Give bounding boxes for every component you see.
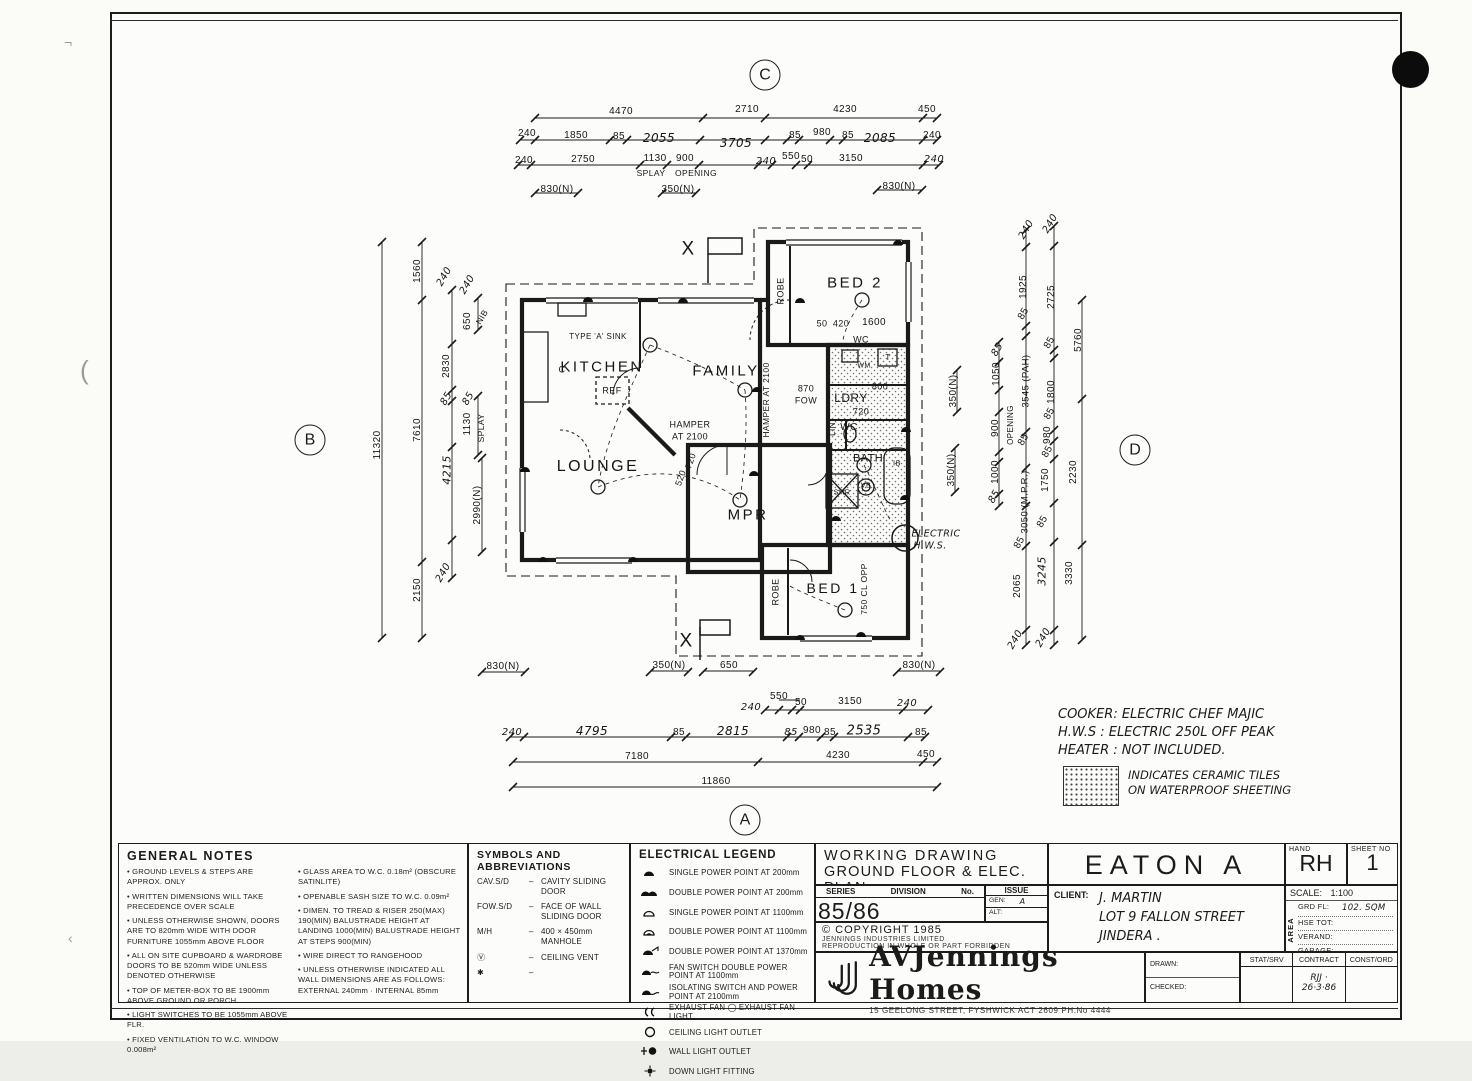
electrical-legend-desc: EXHAUST FAN ◯ EXHAUST FAN LIGHT (669, 1004, 814, 1021)
plan-label: 830(N) (883, 182, 916, 192)
plan-label: 2830 (442, 354, 452, 378)
plan-label: 750 CL OPP (860, 563, 869, 614)
plan-label: 650 (463, 312, 473, 330)
contract-headers: STAT/SRVCONTRACTCONST/ORD (1241, 953, 1397, 967)
ceiling-light-icon (639, 1025, 663, 1042)
section-marker-c: C (750, 60, 781, 91)
division-label: DIVISION (891, 887, 926, 896)
symbol-dash: – (529, 968, 541, 978)
scale-label: SCALE: (1290, 888, 1322, 898)
plan-label: 85 (613, 132, 625, 142)
issue-gen-value: A (1020, 897, 1025, 906)
plan-label: SHR (833, 488, 850, 496)
wall-light-icon (639, 1044, 663, 1061)
plan-label: SPLAY (477, 414, 486, 443)
plan-label: 350(N) (947, 454, 957, 487)
plan-label: 1050 (992, 362, 1002, 386)
electrical-legend-rows: SINGLE POWER POINT AT 200mmDOUBLE POWER … (631, 865, 814, 1081)
plan-label: FAMILY (692, 364, 759, 379)
plan-label: 2725 (1047, 285, 1057, 309)
plan-label: 350(N) (653, 661, 686, 671)
tile-legend-swatch (1063, 766, 1119, 806)
symbol-dash: – (529, 953, 541, 963)
symbol-desc: CAVITY SLIDING DOOR (541, 877, 629, 896)
symbol-desc: CEILING VENT (541, 953, 599, 963)
plan-label: 2065 (1013, 574, 1023, 598)
symbol-row: FOW.S/D – FACE OF WALL SLIDING DOOR (477, 902, 629, 921)
general-notes-box: GENERAL NOTES GROUND LEVELS & STEPS ARE … (118, 843, 468, 1003)
electrical-legend-desc: FAN SWITCH DOUBLE POWER POINT AT 1100mm (669, 964, 814, 981)
general-note-item: GLASS AREA TO W.C. 0.18m² (OBSCURE SATIN… (298, 867, 461, 888)
plan-label: REF (602, 387, 621, 396)
plan-label: 1130 (463, 412, 473, 435)
plan-label: BATH (853, 454, 883, 465)
plan-label: 980 (1043, 426, 1053, 444)
electrical-legend-row: DOUBLE POWER POINT AT 1100mm (639, 924, 814, 941)
electrical-legend-desc: DOUBLE POWER POINT AT 1370mm (669, 948, 808, 957)
issue-cell: ISSUE GEN: A ALT: (985, 885, 1048, 922)
electrical-legend-row: DOWN LIGHT FITTING (639, 1064, 814, 1081)
electrical-legend-desc: DOWN LIGHT FITTING (669, 1068, 755, 1077)
symbols-rows: CAV.S/D – CAVITY SLIDING DOORFOW.S/D – F… (469, 877, 629, 978)
dimension-lines (378, 114, 1086, 791)
plan-label: AT 2100 (672, 433, 708, 442)
client-address-1: LOT 9 FALLON STREET (1099, 908, 1278, 927)
area-row: GRD FL:102. SQM (1298, 901, 1393, 917)
tiled-floor-area (830, 348, 906, 544)
general-note-item: ALL ON SITE CUPBOARD & WARDROBE DOORS TO… (127, 951, 290, 982)
plan-label: 1925 (1019, 275, 1029, 299)
plan-label: BED 1 (807, 581, 860, 595)
symbol-abbr: Ⓥ (477, 953, 529, 963)
plan-label: MPR (728, 508, 769, 523)
electrical-legend-row: WALL LIGHT OUTLET (639, 1044, 814, 1061)
plan-label: 1560 (413, 259, 423, 283)
plan-label: X (679, 632, 692, 651)
tile-legend: INDICATES CERAMIC TILES ON WATERPROOF SH… (1128, 768, 1291, 798)
plan-label: HAMPER AT 2100 (762, 362, 771, 437)
avjennings-logo-icon (826, 956, 861, 1000)
iso-pp-icon (639, 984, 663, 1001)
drawing-sheet: ( ¬ ‹ (0, 0, 1472, 1041)
symbols-box: SYMBOLS AND ABBREVIATIONS CAV.S/D – CAVI… (468, 843, 630, 1003)
plan-label: 980 (813, 128, 831, 138)
area-row-label: GRD FL: (1298, 901, 1342, 916)
heater-note: HEATER : NOT INCLUDED. (1058, 742, 1274, 760)
general-note-item: WIRE DIRECT TO RANGEHOOD (298, 951, 461, 961)
plan-label: 1750 (1041, 468, 1051, 492)
plan-label: 240 (741, 703, 761, 713)
plan-label: 2750 (571, 155, 595, 165)
pp1-200-icon (639, 865, 663, 882)
plan-label: ELECTRIC (912, 529, 961, 539)
plan-label: 240 (924, 155, 944, 165)
general-note-item: FIXED VENTILATION TO W.C. WINDOW 0.008m² (127, 1035, 290, 1056)
electrical-legend-row: ISOLATING SWITCH AND POWER POINT AT 2100… (639, 984, 814, 1001)
electrical-legend-title: ELECTRICAL LEGEND (639, 849, 814, 861)
plan-label: 85 (842, 131, 854, 141)
plan-label: 2990(N) (473, 486, 483, 525)
plan-label: 240 (897, 699, 917, 709)
general-notes-right-column: GLASS AREA TO W.C. 0.18m² (OBSCURE SATIN… (298, 867, 461, 1059)
series-cell: SERIES DIVISION No. 85/86 A.C.T.370 (815, 885, 985, 922)
plan-label: T (885, 354, 890, 362)
general-note-item: UNLESS OTHERWISE SHOWN, DOORS ARE TO 820… (127, 916, 290, 947)
contract-cell: STAT/SRVCONTRACTCONST/ORD RJJ · 26·3·86 (1240, 952, 1398, 1003)
plan-label: 240 (502, 728, 522, 738)
plan-label: 3545 (PAH) (1021, 355, 1031, 408)
client-name: J. MARTIN (1099, 889, 1278, 908)
general-notes-left-column: GROUND LEVELS & STEPS ARE APPROX. ONLYWR… (127, 867, 290, 1059)
symbol-abbr: ✱ (477, 968, 529, 978)
electrical-legend-row: FAN SWITCH DOUBLE POWER POINT AT 1100mm (639, 964, 814, 981)
general-note-item: OPENABLE SASH SIZE TO W.C. 0.09m² (298, 892, 461, 902)
symbol-dash: – (529, 927, 541, 946)
logo-cell: AVJennings Homes 15 GEELONG STREET, FYSH… (815, 952, 1145, 1003)
plan-label: 3050 (M.P.R.) (1020, 470, 1030, 533)
plan-label: 3150 (839, 154, 863, 164)
general-notes-title: GENERAL NOTES (127, 849, 467, 863)
electrical-legend-row: SINGLE POWER POINT AT 200mm (639, 865, 814, 882)
plan-label: 240 (923, 131, 941, 141)
plan-label: 830(N) (487, 662, 520, 672)
electrical-legend-desc: WALL LIGHT OUTLET (669, 1048, 751, 1057)
plan-label: OPENING (675, 169, 717, 178)
plan-label: 85 (789, 131, 801, 141)
area-label: AREA (1286, 901, 1298, 959)
plan-label: FOW (795, 397, 817, 406)
plan-label: 1600 (862, 318, 886, 328)
electrical-legend-desc: ISOLATING SWITCH AND POWER POINT AT 2100… (669, 984, 814, 1001)
issue-gen-label: GEN: (989, 897, 1006, 906)
plan-label: LIN (829, 422, 837, 436)
area-row-label: HSE TOT: (1298, 917, 1342, 930)
plan-label: 650 (720, 661, 738, 671)
plan-label: SPLAY (637, 169, 666, 178)
plan-label: 240 (515, 156, 533, 166)
area-row: VERAND: (1298, 931, 1393, 945)
plan-label: BED 2 (827, 276, 883, 291)
plan-label: 1130 (643, 154, 666, 164)
plan-label: 50 (801, 155, 813, 165)
plan-label: 1000 (991, 460, 1001, 484)
tile-legend-line2: ON WATERPROOF SHEETING (1128, 783, 1291, 798)
appliance-notes: COOKER: ELECTRIC CHEF MAJIC H.W.S : ELEC… (1058, 706, 1274, 760)
contract-values: RJJ · 26·3·86 (1241, 967, 1397, 1003)
copyright-line: © COPYRIGHT 1985 (822, 924, 1041, 936)
plan-label: TYPE 'A' SINK (569, 333, 627, 341)
area-row: HSE TOT: (1298, 917, 1393, 931)
general-note-item: UNLESS OTHERWISE INDICATED ALL WALL DIME… (298, 965, 461, 996)
plan-label: 7610 (413, 418, 423, 442)
drawn-checked-cell: DRAWN: CHECKED: (1145, 952, 1240, 1003)
symbol-dash: – (529, 902, 541, 921)
plan-label: 800 (872, 383, 888, 392)
checked-label: CHECKED: (1146, 978, 1239, 991)
plan-label: 3705 (720, 137, 752, 149)
logo-address: 15 GEELONG STREET, FYSHWICK ACT 2609 PH.… (869, 1006, 1144, 1015)
plan-label: X (681, 240, 694, 259)
plan-label: HAMPER (670, 421, 711, 430)
general-note-item: LIGHT SWITCHES TO BE 1055mm ABOVE FLR. (127, 1010, 290, 1031)
symbol-row: M/H – 400 × 450mm MANHOLE (477, 927, 629, 946)
plan-label: IB (893, 459, 901, 467)
plan-label: LDRY (834, 392, 867, 404)
plan-label: 5760 (1074, 328, 1084, 352)
plan-label: 50 (795, 698, 807, 708)
plan-label: LOUNGE (557, 459, 640, 475)
general-note-item: WRITTEN DIMENSIONS WILL TAKE PRECEDENCE … (127, 892, 290, 913)
electrical-legend-desc: DOUBLE POWER POINT AT 1100mm (669, 928, 807, 937)
plan-label: KITCHEN (560, 360, 643, 375)
scale-area-cell: SCALE: 1:100 AREA GRD FL:102. SQMHSE TOT… (1285, 885, 1398, 952)
general-note-item: DIMEN. TO TREAD & RISER 250(MAX) 190(MIN… (298, 906, 461, 947)
symbols-title: SYMBOLS AND ABBREVIATIONS (477, 849, 629, 873)
drawing-title-line1: WORKING DRAWING (824, 848, 1039, 864)
contract-value: RJJ · 26·3·86 (1293, 967, 1345, 1003)
no-label: No. (961, 887, 974, 896)
section-marker-d: D (1120, 435, 1151, 466)
plan-label: 4230 (833, 105, 857, 115)
plan-label: 3245 (1037, 556, 1048, 586)
area-row-value: 102. SQM (1342, 901, 1385, 916)
section-marker-a: A (730, 805, 761, 836)
electrical-legend-box: ELECTRICAL LEGEND SINGLE POWER POINT AT … (630, 843, 815, 1003)
plan-label: 11320 (373, 430, 383, 459)
plan-label: 3330 (1065, 561, 1075, 585)
electrical-legend-desc: SINGLE POWER POINT AT 1100mm (669, 909, 804, 918)
plan-label: 85 (824, 728, 836, 738)
plan-label: 2535 (847, 725, 882, 738)
exhaust-icon (639, 1005, 663, 1022)
client-label: CLIENT: (1054, 890, 1089, 900)
down-light-icon (639, 1064, 663, 1081)
plan-label: 980 (803, 726, 821, 736)
plan-label: 4230 (826, 751, 850, 761)
contract-header: STAT/SRV (1241, 953, 1293, 966)
plan-label: ROBE (777, 277, 786, 304)
plan-label: 85 (784, 728, 798, 738)
plan-label: 4795 (576, 725, 608, 737)
drawn-label: DRAWN: (1146, 953, 1239, 978)
plan-label: 11860 (701, 777, 730, 787)
plan-label: 240 (518, 129, 536, 139)
plan-label: 900 (991, 419, 1001, 437)
plan-label: 2085 (864, 132, 896, 144)
plan-label: WC (840, 423, 857, 433)
electrical-legend-desc: CEILING LIGHT OUTLET (669, 1029, 762, 1038)
plan-label: 550 (770, 692, 788, 702)
plan-label: 830(N) (541, 185, 574, 195)
hand-cell: HAND RH (1285, 843, 1347, 885)
pp2-1370-icon (639, 944, 663, 961)
symbol-row: ✱ – (477, 968, 629, 978)
area-row-label: VERAND: (1298, 931, 1342, 944)
plan-label: 4215 (442, 455, 453, 485)
symbol-abbr: M/H (477, 927, 529, 946)
plan-label: WM (857, 363, 870, 370)
scale-value: 1:100 (1331, 888, 1354, 898)
hws-note: H.W.S : ELECTRIC 250L OFF PEAK (1058, 724, 1274, 742)
electrical-legend-row: EXHAUST FAN ◯ EXHAUST FAN LIGHT (639, 1004, 814, 1021)
pp2-1100-icon (639, 924, 663, 941)
plan-label: 3150 (838, 697, 862, 707)
plan-label: OPENING (1007, 405, 1015, 445)
hand-value: RH (1286, 850, 1346, 877)
symbol-row: CAV.S/D – CAVITY SLIDING DOOR (477, 877, 629, 896)
plan-label: 2230 (1069, 460, 1079, 484)
electrical-legend-desc: SINGLE POWER POINT AT 200mm (669, 869, 800, 878)
plan-label: 450 (917, 750, 935, 760)
sheet-no-value: 1 (1348, 850, 1397, 876)
plan-label: 870 (798, 385, 814, 394)
model-name: EATON A (1048, 843, 1285, 885)
plan-label: 450 (918, 105, 936, 115)
plan-label: C (559, 366, 566, 375)
symbol-desc: 400 × 450mm MANHOLE (541, 927, 629, 946)
contract-header: CONTRACT (1293, 953, 1345, 966)
plan-label: 720 (853, 408, 869, 417)
plan-label: 7180 (625, 752, 649, 762)
issue-label: ISSUE (986, 886, 1047, 896)
contract-header: CONST/ORD (1346, 953, 1397, 966)
electrical-legend-row: SINGLE POWER POINT AT 1100mm (639, 905, 814, 922)
plan-label: WC (853, 336, 869, 345)
pp2-200-icon (639, 885, 663, 902)
general-note-item: TOP OF METER-BOX TO BE 1900mm ABOVE GROU… (127, 986, 290, 1007)
plan-label: 420 (833, 320, 849, 329)
electrical-legend-row: DOUBLE POWER POINT AT 200mm (639, 885, 814, 902)
plan-label: ROBE (772, 578, 781, 605)
symbol-abbr: CAV.S/D (477, 877, 529, 896)
symbol-dash: – (529, 877, 541, 896)
area-rows: GRD FL:102. SQMHSE TOT:VERAND:GARAGE: (1298, 901, 1397, 959)
symbol-row: Ⓥ – CEILING VENT (477, 953, 629, 963)
pp1-1100-icon (639, 905, 663, 922)
plan-label: 1800 (1047, 380, 1057, 404)
tile-legend-line1: INDICATES CERAMIC TILES (1128, 768, 1291, 783)
plan-label: 240 (756, 157, 776, 167)
plan-label: 4470 (609, 107, 633, 117)
cooker-note: COOKER: ELECTRIC CHEF MAJIC (1058, 706, 1274, 724)
electrical-legend-row: CEILING LIGHT OUTLET (639, 1025, 814, 1042)
plan-label: 350(N) (949, 375, 959, 408)
sheet-no-cell: SHEET NO 1 (1347, 843, 1398, 885)
issue-alt-label: ALT: (989, 909, 1002, 916)
plan-label: H.W.S. (913, 541, 946, 551)
plan-label: 85 (673, 728, 685, 738)
fan-pp2-icon (639, 964, 663, 981)
general-note-item: GROUND LEVELS & STEPS ARE APPROX. ONLY (127, 867, 290, 888)
plan-label: 50 (817, 320, 828, 329)
series-label: SERIES (826, 887, 855, 896)
plan-label: 1850 (564, 131, 588, 141)
plan-label: VB (861, 483, 871, 490)
plan-label: 2815 (717, 725, 749, 737)
plan-label: 85 (915, 728, 927, 738)
plan-label: 2150 (413, 578, 423, 602)
symbol-abbr: FOW.S/D (477, 902, 529, 921)
plan-label: 550 (782, 152, 800, 162)
electrical-legend-desc: DOUBLE POWER POINT AT 200mm (669, 889, 803, 898)
drawing-title-cell: WORKING DRAWING GROUND FLOOR & ELEC. PLA… (815, 843, 1048, 885)
plan-label: 2055 (643, 132, 675, 144)
plan-label: 350(N) (662, 185, 695, 195)
symbol-desc: FACE OF WALL SLIDING DOOR (541, 902, 629, 921)
plan-label: 900 (676, 154, 694, 164)
logo-text: AVJennings Homes (869, 940, 1144, 1006)
contract-value (1241, 967, 1293, 1003)
electrical-legend-row: DOUBLE POWER POINT AT 1370mm (639, 944, 814, 961)
plan-label: 830(N) (903, 661, 936, 671)
contract-value (1346, 967, 1397, 1003)
section-marker-b: B (295, 425, 326, 456)
plan-label: 2710 (735, 105, 759, 115)
